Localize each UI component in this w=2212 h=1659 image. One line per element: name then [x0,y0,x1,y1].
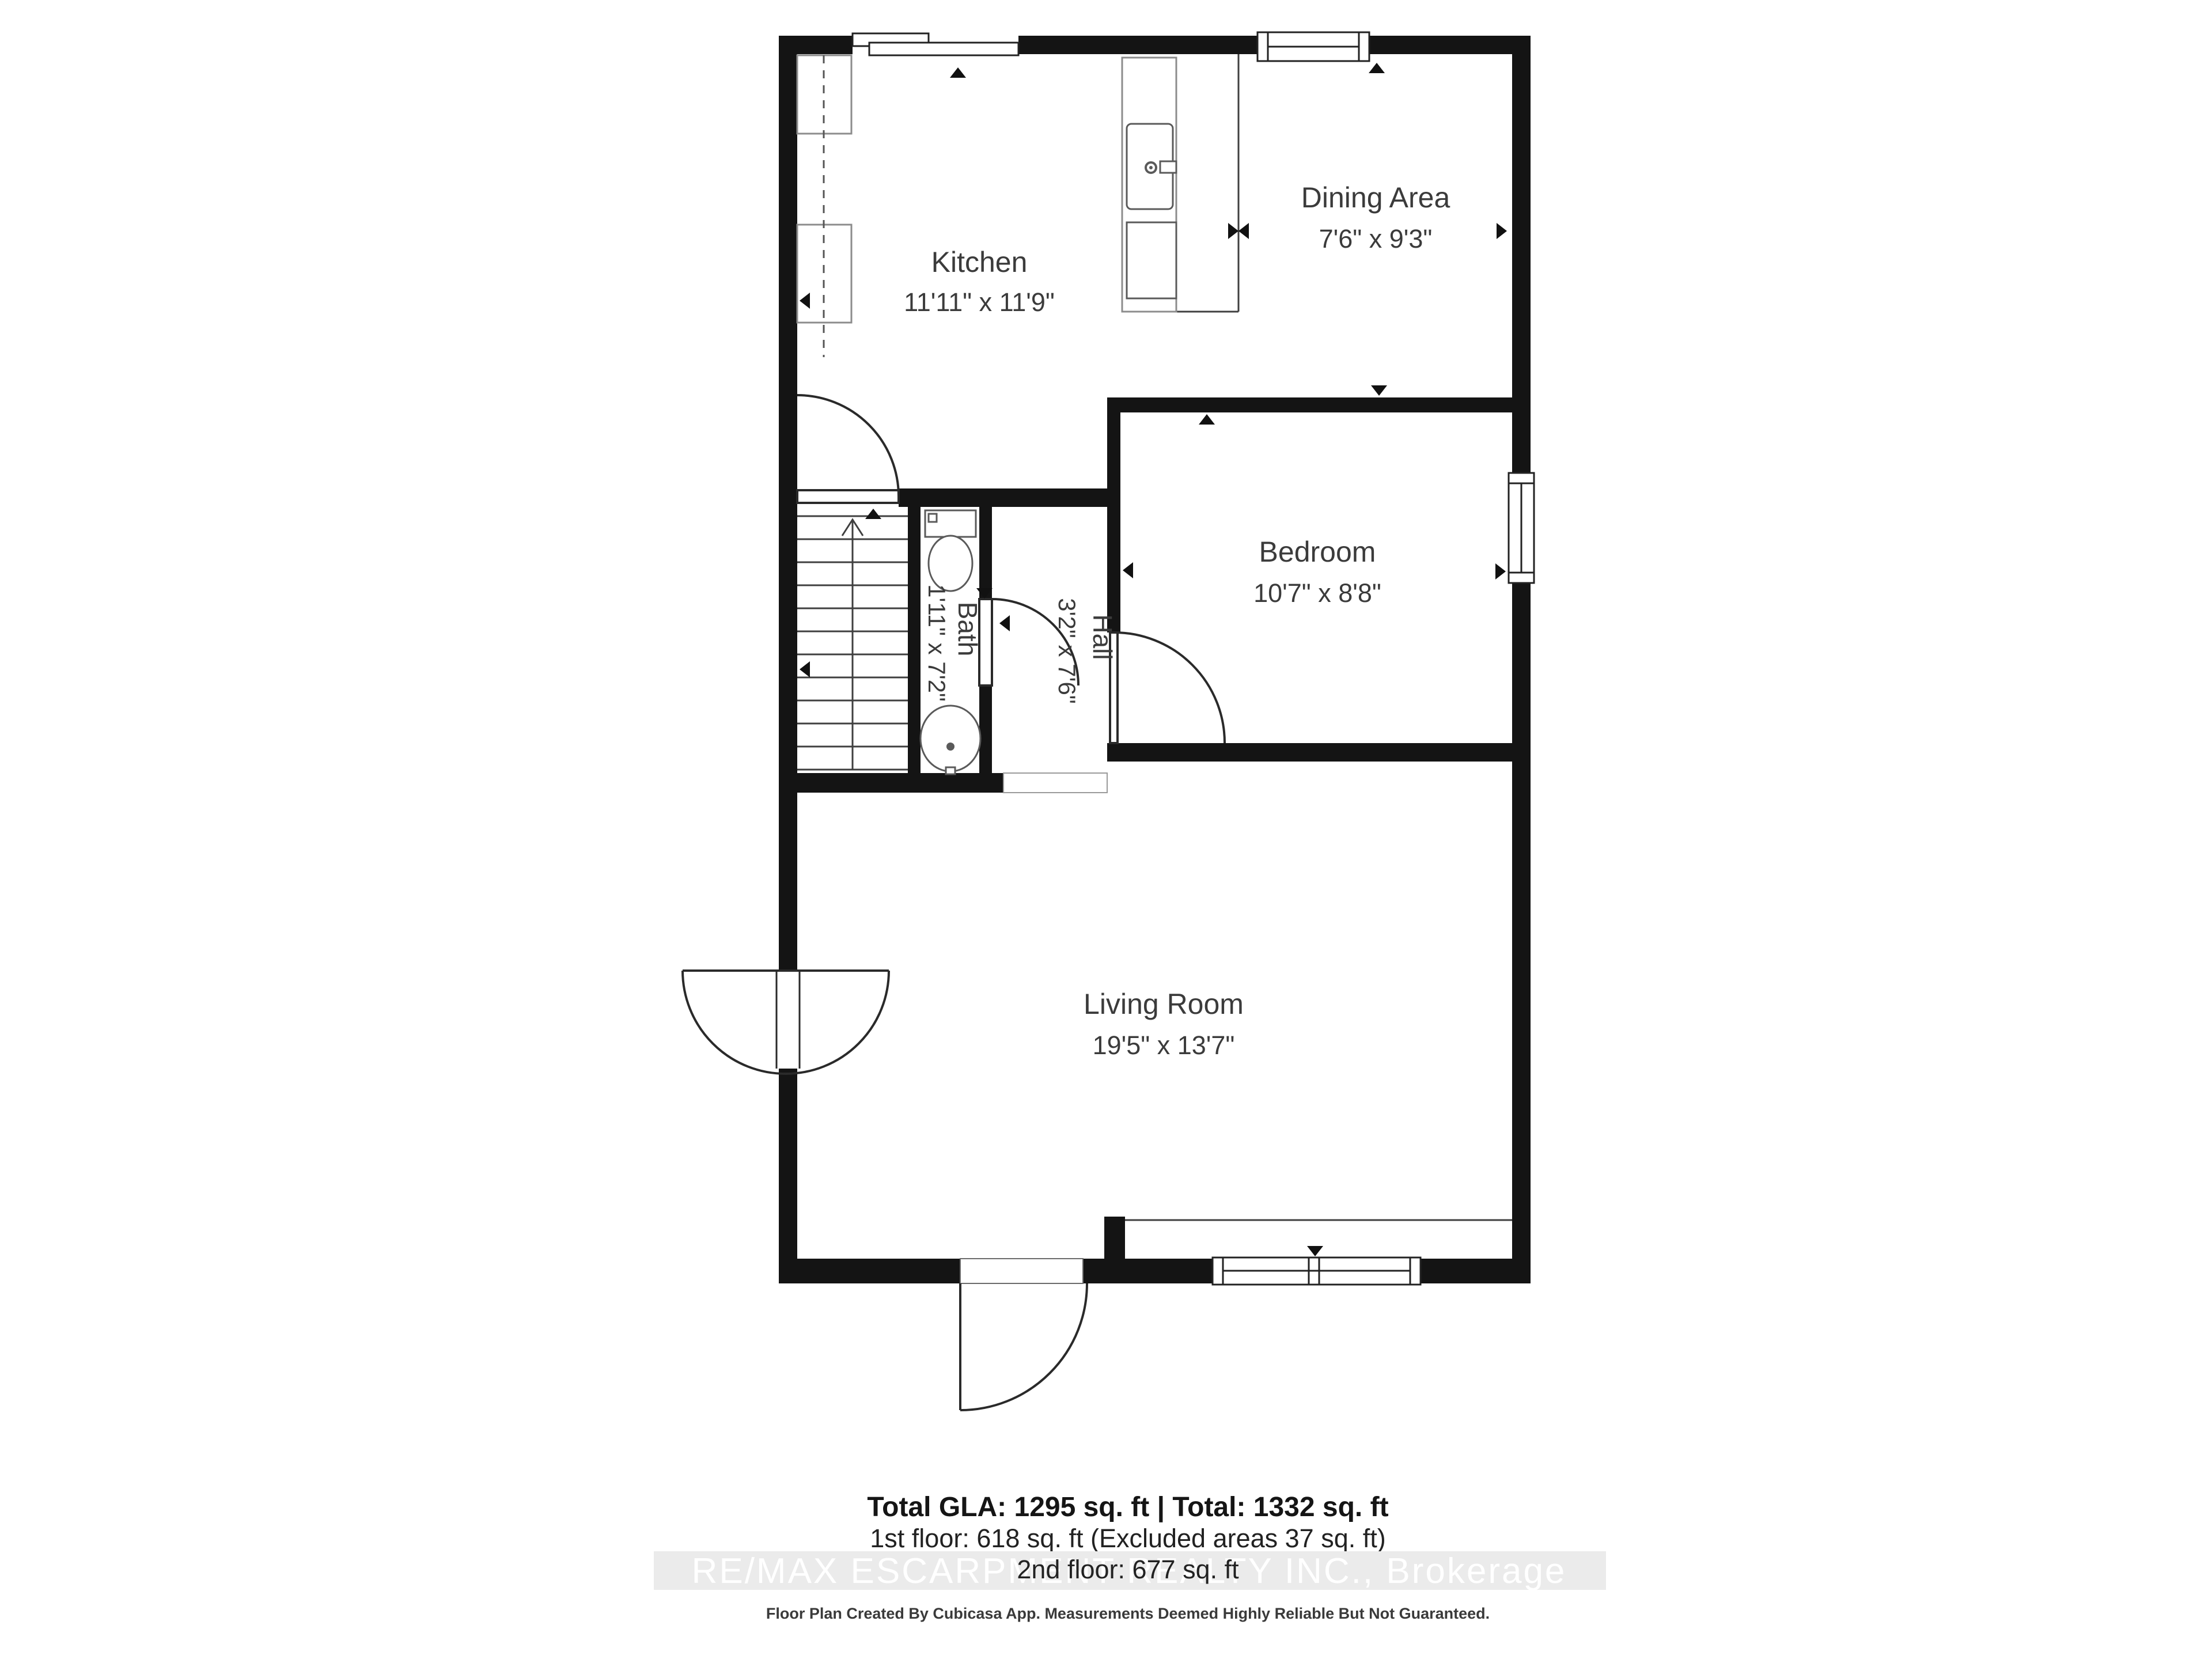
second-floor-line: 2nd floor: 677 sq. ft [1017,1555,1239,1584]
staircase [797,516,908,770]
bedroom-dims: 10'7" x 8'8" [1253,578,1381,608]
dining-dims: 7'6" x 9'3" [1319,224,1433,253]
footer-disclaimer: Floor Plan Created By Cubicasa App. Meas… [766,1605,1490,1622]
living-dims: 19'5" x 13'7" [1093,1031,1235,1060]
first-floor-line: 1st floor: 618 sq. ft (Excluded areas 37… [870,1524,1385,1553]
floor-plan-drawing: Kitchen 11'11" x 11'9" Dining Area 7'6" … [0,0,2212,1659]
bath-sink-icon [921,706,980,774]
summary-block: Total GLA: 1295 sq. ft | Total: 1332 sq.… [867,1492,1388,1553]
entry-door [960,1259,1087,1410]
bedroom-label: Bedroom [1259,536,1376,568]
bath-label: Bath [953,602,983,657]
bedroom-window-right [1509,473,1534,583]
front-door [683,971,889,1074]
living-label: Living Room [1084,988,1244,1020]
hall-opening [1003,773,1107,793]
kitchen-dims: 11'11" x 11'9" [904,287,1055,317]
sliding-door-top [853,33,1018,55]
total-gla-line: Total GLA: 1295 sq. ft | Total: 1332 sq.… [867,1492,1388,1522]
stairs-up-arrow [842,520,863,770]
stove-icon [1127,222,1176,298]
kitchen-label: Kitchen [931,246,1028,278]
floor-plan-page: Kitchen 11'11" x 11'9" Dining Area 7'6" … [0,0,2212,1659]
bath-dims: 1'11" x 7'2" [923,584,950,702]
dining-label: Dining Area [1301,181,1450,214]
bedroom-door [1107,632,1225,743]
dining-window-top [1257,32,1369,61]
kitchen-sink-icon [1127,124,1176,209]
living-window-bottom [1213,1257,1421,1285]
hall-label: Hall [1088,614,1118,660]
interior-walls [779,397,1531,1259]
toilet-icon [925,510,976,591]
stairs-door [797,395,899,507]
hall-dims: 3'2" x 7'6" [1054,598,1081,704]
